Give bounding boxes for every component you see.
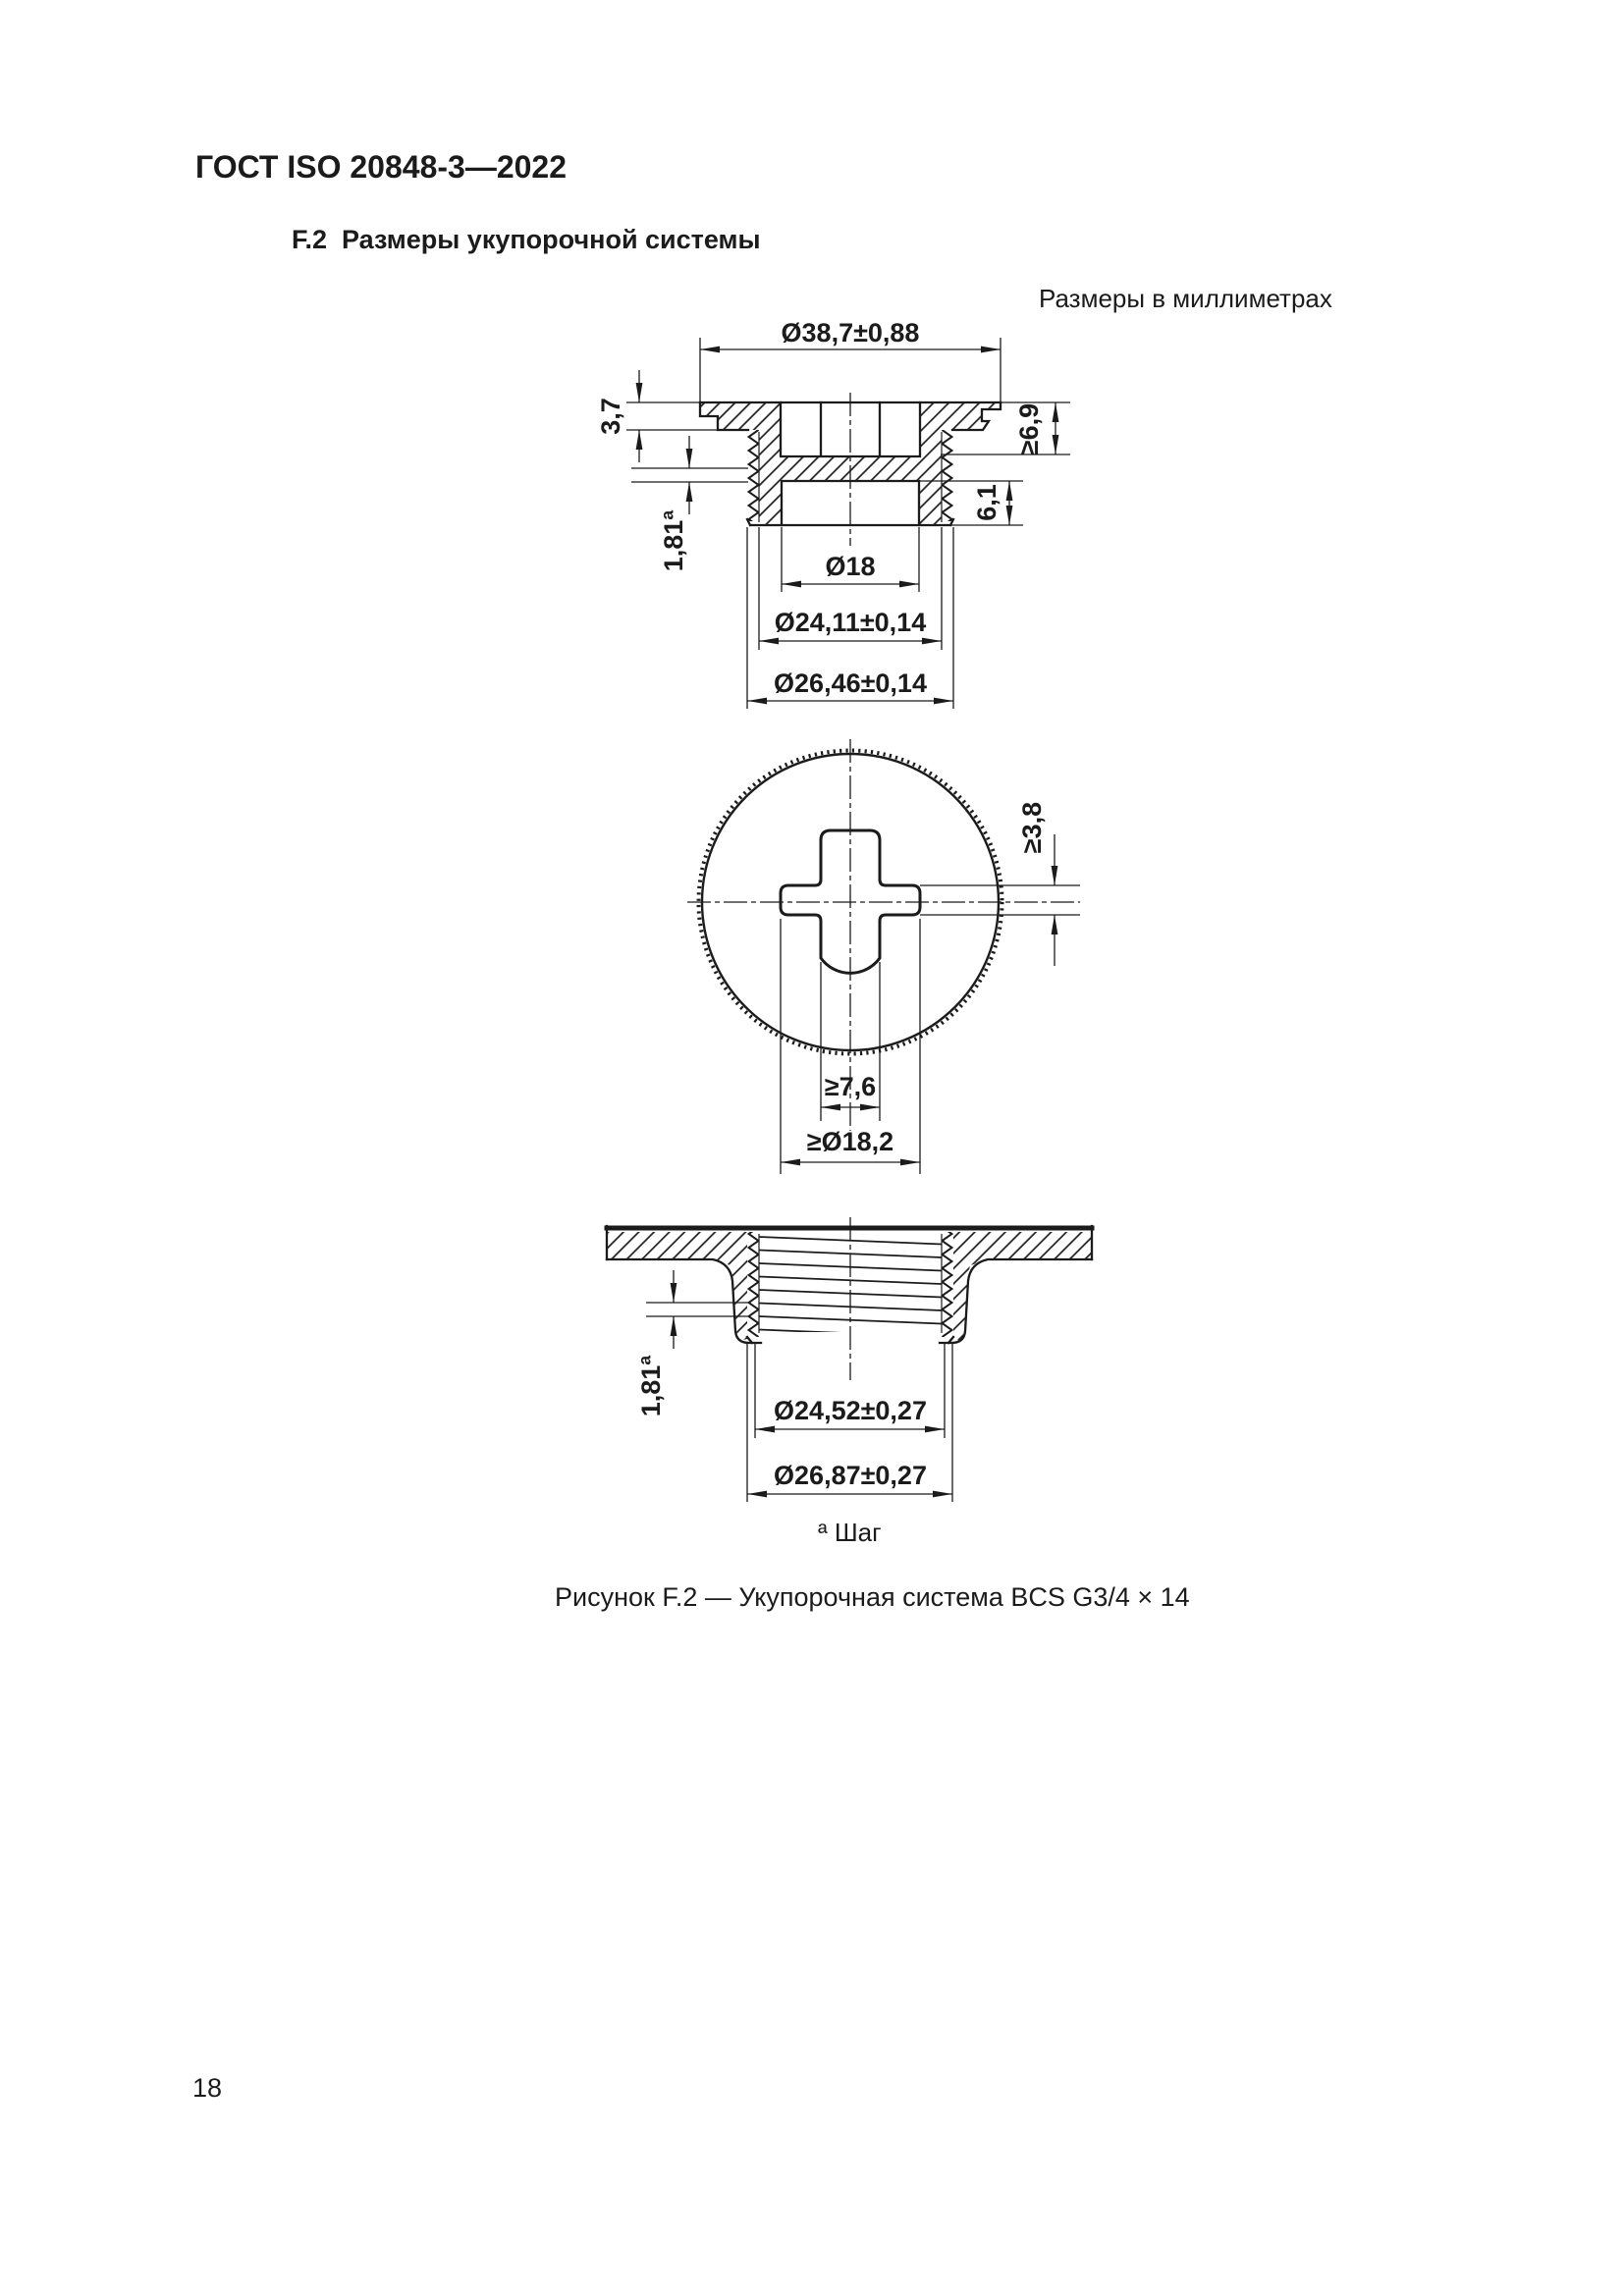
- drawing-cap-section: Ø38,7±0,88 3,7 1,81ª ≥6,9 6,1 Ø18 Ø24,11…: [596, 318, 1070, 709]
- dim-d3-thread-outer-diameter: Ø26,87±0,27: [774, 1461, 927, 1490]
- figure-footnote: ª Шаг: [818, 1518, 882, 1548]
- dim-d1-inner-diameter: Ø18: [825, 552, 875, 581]
- dim-d1-pitch: 1,81ª: [659, 510, 688, 572]
- dim-d1-flange-diameter: Ø38,7±0,88: [782, 318, 920, 347]
- drawing-neck-section: 1,81ª Ø24,52±0,27 Ø26,87±0,27: [607, 1217, 1092, 1502]
- figure-caption: Рисунок F.2 — Укупорочная система BCS G3…: [555, 1582, 1190, 1613]
- dim-d1-thread-crest-diameter: Ø26,46±0,14: [774, 668, 927, 698]
- dim-d2-slot-depth: ≥3,8: [1017, 802, 1047, 853]
- cap-dimension-lines: [626, 338, 1070, 709]
- drawing-cap-top-view: ≥3,8 ≥7,6 ≥Ø18,2: [687, 739, 1080, 1174]
- dim-d1-min-height: ≥6,9: [1014, 403, 1044, 454]
- dim-d2-slot-width: ≥7,6: [825, 1072, 876, 1101]
- dim-d2-slot-diameter: ≥Ø18,2: [807, 1127, 893, 1156]
- dim-d1-flange-thickness: 3,7: [596, 398, 625, 435]
- page-number: 18: [192, 2073, 222, 2104]
- technical-drawings-svg: Ø38,7±0,88 3,7 1,81ª ≥6,9 6,1 Ø18 Ø24,11…: [0, 0, 1624, 2296]
- dim-d1-cavity-height: 6,1: [972, 484, 1001, 521]
- dim-d3-thread-inner-diameter: Ø24,52±0,27: [774, 1396, 927, 1425]
- dim-d3-pitch: 1,81ª: [636, 1356, 666, 1417]
- dim-d1-thread-root-diameter: Ø24,11±0,14: [775, 608, 926, 637]
- document-page: { "page": { "header": "ГОСТ ISO 20848-3—…: [0, 0, 1624, 2296]
